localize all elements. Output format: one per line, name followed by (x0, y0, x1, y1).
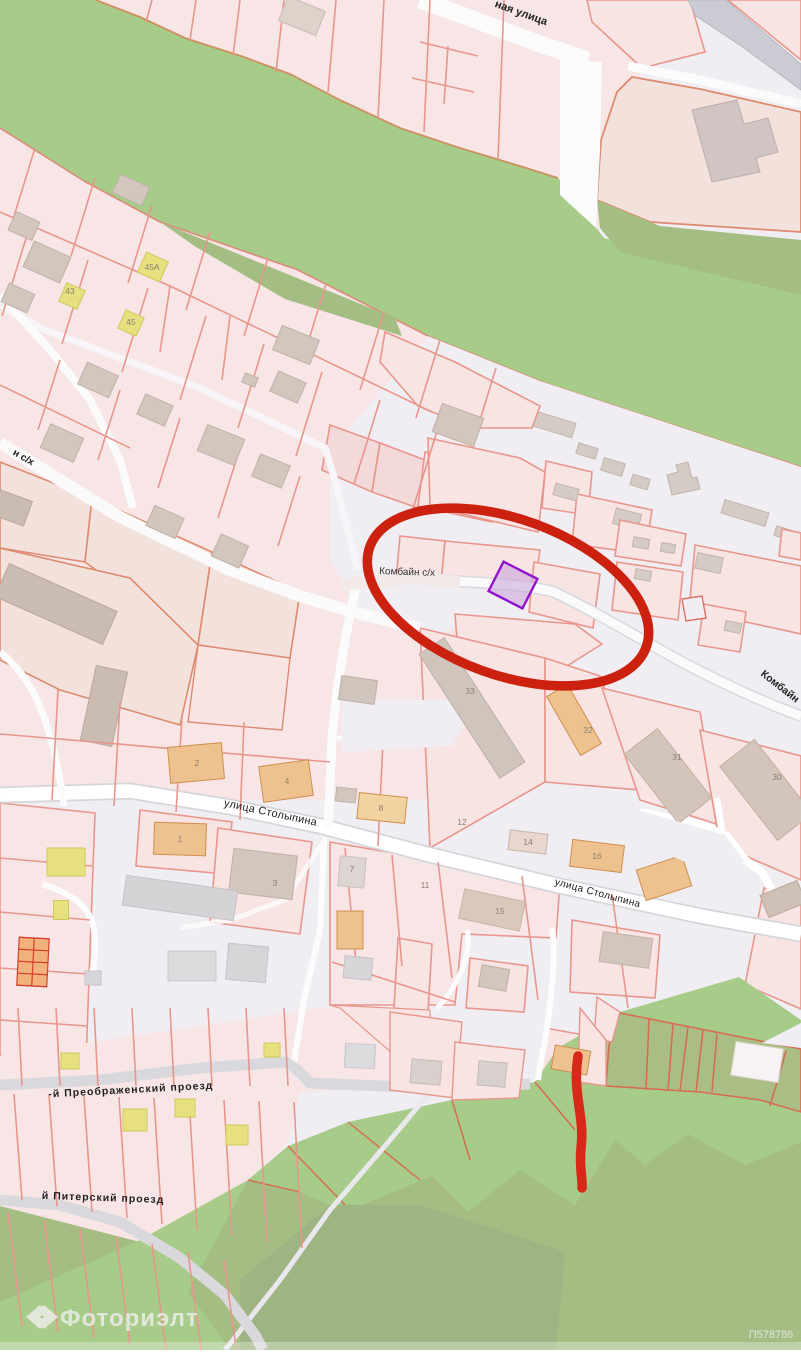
svg-text:31: 31 (672, 752, 682, 762)
svg-text:8: 8 (379, 803, 384, 813)
svg-text:1: 1 (178, 834, 183, 844)
svg-text:14: 14 (523, 837, 533, 847)
svg-text:43: 43 (65, 286, 75, 296)
svg-text:30: 30 (772, 772, 782, 782)
svg-text:45А: 45А (144, 262, 159, 272)
svg-text:3: 3 (273, 878, 278, 888)
svg-text:11: 11 (421, 880, 430, 890)
svg-text:33: 33 (465, 686, 475, 696)
svg-text:2: 2 (195, 758, 200, 768)
svg-text:4: 4 (285, 776, 290, 786)
svg-text:Комбайн с/х: Комбайн с/х (379, 565, 435, 579)
svg-text:12: 12 (457, 817, 467, 827)
svg-text:32: 32 (583, 725, 593, 735)
svg-text:7: 7 (350, 864, 355, 874)
svg-text:Фоториэлт: Фоториэлт (60, 1305, 199, 1332)
svg-text:П578786: П578786 (749, 1329, 794, 1341)
svg-text:15: 15 (495, 906, 505, 916)
svg-text:16: 16 (592, 851, 602, 861)
svg-text:45: 45 (126, 317, 136, 327)
